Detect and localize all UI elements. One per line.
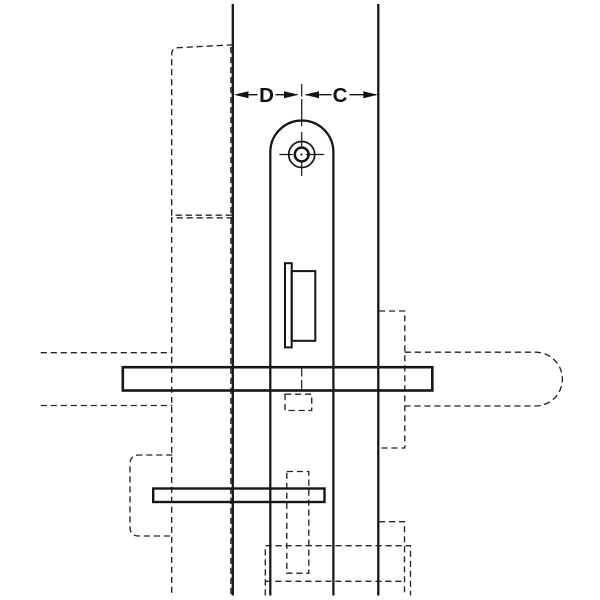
svg-text:C: C: [333, 84, 348, 107]
svg-text:D: D: [259, 84, 274, 107]
